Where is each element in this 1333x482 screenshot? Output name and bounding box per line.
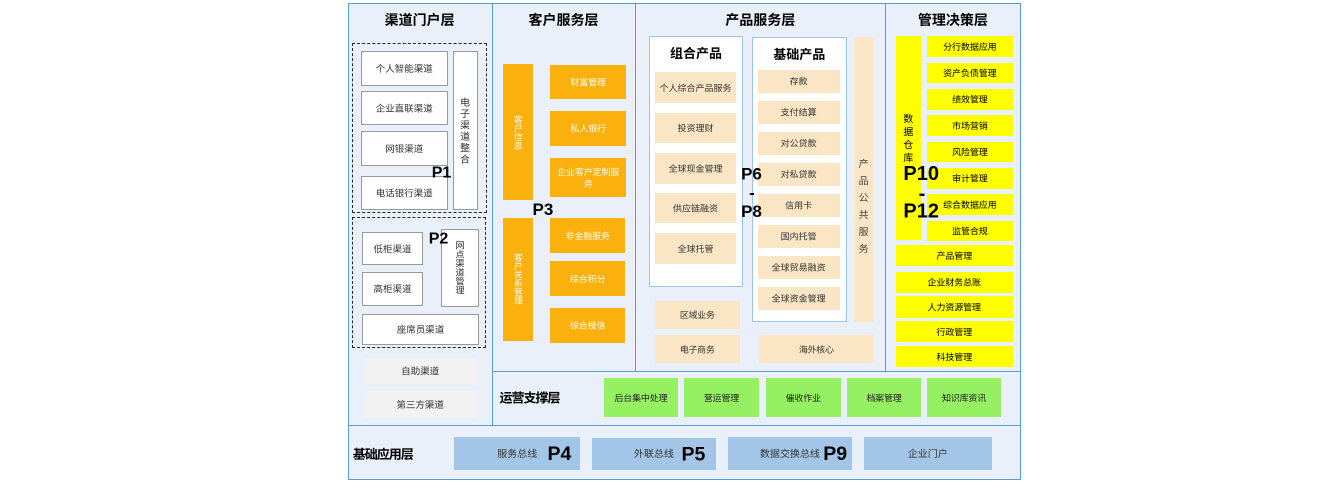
svg-text:P10: P10	[903, 163, 939, 185]
svg-text:P8: P8	[741, 202, 762, 221]
svg-text:P6: P6	[741, 165, 762, 184]
svg-text:P4: P4	[547, 443, 571, 465]
svg-text:P12: P12	[903, 201, 939, 223]
svg-text:-: -	[749, 183, 755, 202]
svg-text:P3: P3	[533, 200, 554, 219]
svg-text:P2: P2	[429, 230, 449, 247]
svg-text:P1: P1	[432, 165, 452, 182]
svg-text:P9: P9	[823, 443, 847, 465]
svg-text:P5: P5	[681, 443, 705, 465]
